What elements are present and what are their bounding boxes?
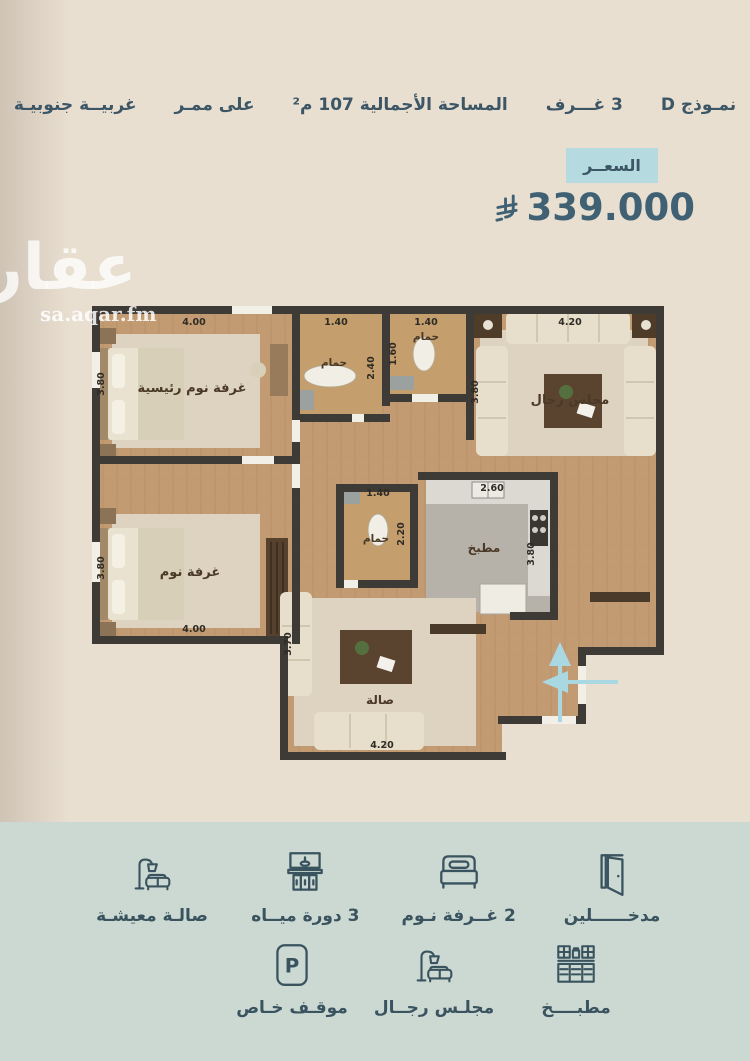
spec-rooms: 3 غـــرف bbox=[527, 95, 642, 115]
feature-kitchen: مطبــــخ bbox=[524, 940, 628, 1018]
plan-section: نمـوذج D 3 غـــرف المساحة الأجمالية 107 … bbox=[0, 0, 750, 822]
feature-label: مجلـس رجــال bbox=[374, 998, 494, 1018]
bed-icon bbox=[434, 848, 484, 898]
room-label-master-bedroom: غرفة نوم رئيسية bbox=[137, 381, 246, 396]
room-label-kitchen: مطبخ bbox=[468, 541, 501, 555]
feature-private-parking: P موقـف خـاص bbox=[240, 940, 344, 1018]
feature-label: موقـف خـاص bbox=[236, 998, 348, 1018]
kitchen-icon bbox=[551, 940, 601, 990]
dim-bath1-width: 1.40 bbox=[324, 317, 348, 328]
dim-hall-depth: 3.70 bbox=[283, 632, 294, 656]
feature-bedrooms: 2 غــرفة نـوم bbox=[407, 848, 511, 926]
price-badge: السعــر bbox=[566, 148, 658, 183]
dim-bath2-width: 1.40 bbox=[414, 317, 438, 328]
floor-plan: غرفة نوم رئيسية حمام حمام مجلس رجال غرفة… bbox=[82, 292, 674, 770]
spec-orientation: غربيــة جنوبيـة bbox=[0, 95, 156, 115]
majlis-sofa-icon bbox=[409, 940, 459, 990]
room-label-hall: صالة bbox=[366, 693, 394, 707]
listing-flyer: نمـوذج D 3 غـــرف المساحة الأجمالية 107 … bbox=[0, 0, 750, 1061]
feature-bathrooms: 3 دورة ميــاه bbox=[253, 848, 357, 926]
dim-hall-width: 4.20 bbox=[370, 740, 394, 751]
dim-majlis-width: 4.20 bbox=[558, 317, 582, 328]
dim-kitchen-width: 2.60 bbox=[480, 483, 504, 494]
features-row-2: مطبــــخ مجلـس رجــال P bbox=[0, 926, 750, 1018]
spec-model: نمـوذج D bbox=[642, 95, 750, 115]
dim-bath1-depth: 2.40 bbox=[366, 356, 377, 380]
bathroom-vanity-icon bbox=[280, 848, 330, 898]
dim-bedroom2-width: 4.00 bbox=[182, 624, 206, 635]
dim-master-width: 4.00 bbox=[182, 317, 206, 328]
features-row-1: مدخــــــلين 2 غــرفة نـوم bbox=[0, 822, 750, 926]
feature-label: 3 دورة ميــاه bbox=[251, 906, 359, 926]
feature-label: مدخــــــلين bbox=[564, 906, 661, 926]
dim-bath3-width: 1.40 bbox=[366, 488, 390, 499]
spec-total-area: المساحة الأجمالية 107 م² bbox=[274, 95, 527, 115]
room-label-majlis: مجلس رجال bbox=[531, 393, 610, 408]
parking-icon: P bbox=[267, 940, 317, 990]
feature-label: صالـة معيشـة bbox=[96, 906, 208, 926]
sofa-lamp-icon bbox=[127, 848, 177, 898]
aqar-site-url: sa.aqar.fm bbox=[40, 302, 157, 326]
feature-entrances: مدخــــــلين bbox=[560, 848, 664, 926]
feature-label: مطبــــخ bbox=[541, 998, 611, 1018]
price-value: 339.000 bbox=[526, 186, 695, 229]
dim-bath2-depth: 1.60 bbox=[388, 342, 399, 366]
specs-bar: نمـوذج D 3 غـــرف المساحة الأجمالية 107 … bbox=[0, 72, 750, 138]
price-badge-label: السعــر bbox=[583, 156, 641, 175]
room-label-bedroom2: غرفة نوم bbox=[160, 565, 220, 580]
spec-position: على ممـر bbox=[156, 95, 274, 115]
feature-label: 2 غــرفة نـوم bbox=[402, 906, 516, 926]
dim-kitchen-depth: 3.80 bbox=[526, 542, 537, 566]
price-amount: 339.000 bbox=[494, 186, 695, 229]
room-label-bath-1: حمام bbox=[321, 357, 347, 369]
features-section: مدخــــــلين 2 غــرفة نـوم bbox=[0, 822, 750, 1061]
dim-majlis-depth: 3.80 bbox=[470, 380, 481, 404]
feature-living-room: صالـة معيشـة bbox=[100, 848, 204, 926]
parking-letter: P bbox=[285, 954, 300, 977]
saudi-riyal-icon bbox=[494, 193, 519, 222]
door-icon bbox=[587, 848, 637, 898]
dim-master-depth: 3.80 bbox=[96, 372, 107, 396]
dim-bath3-depth: 2.20 bbox=[396, 522, 407, 546]
feature-mens-majlis: مجلـس رجــال bbox=[382, 940, 486, 1018]
room-label-bath-2: حمام bbox=[413, 331, 439, 343]
room-label-bath-3: حمام bbox=[363, 533, 389, 545]
aqar-logo: عقار bbox=[0, 236, 137, 300]
dim-bedroom2-depth: 3.80 bbox=[96, 556, 107, 580]
